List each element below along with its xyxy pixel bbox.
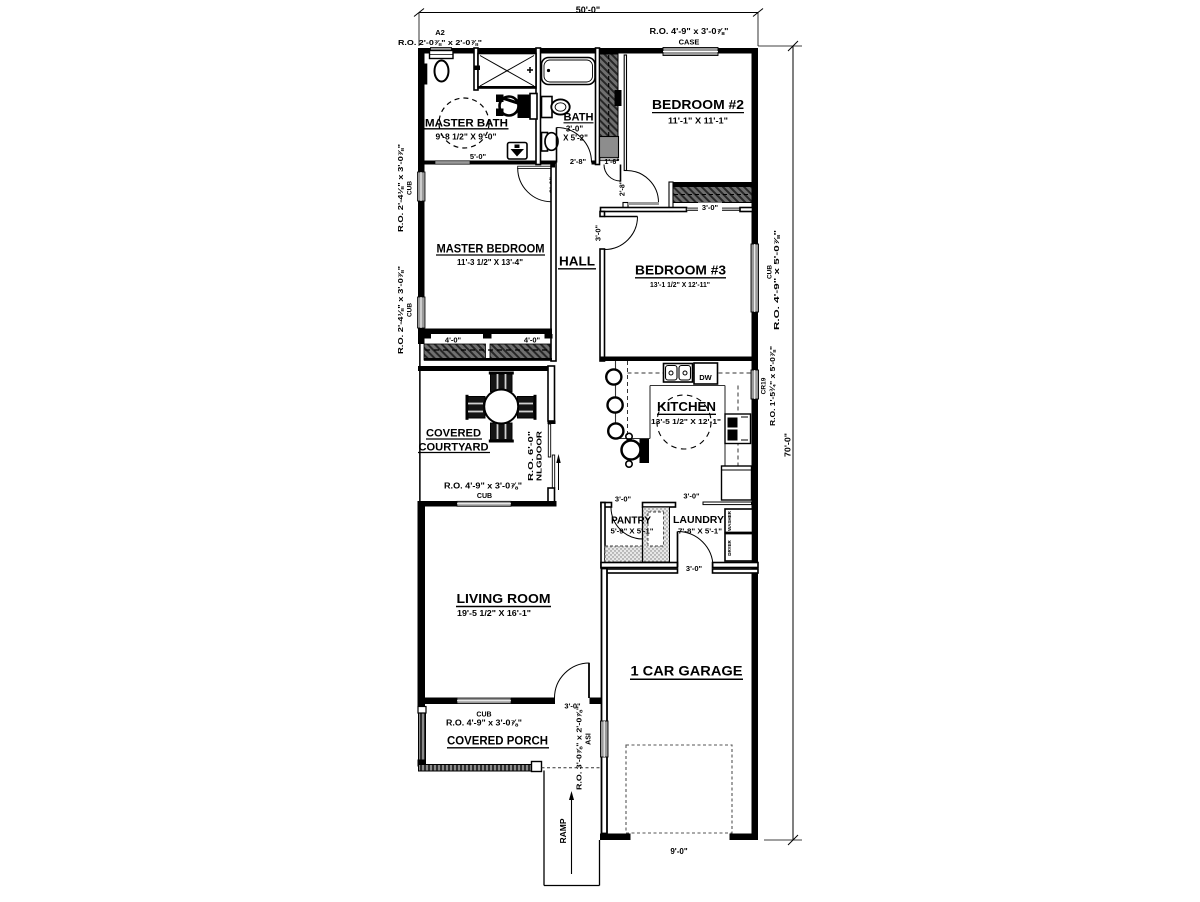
svg-text:LIVING ROOM: LIVING ROOM bbox=[457, 591, 551, 606]
svg-text:11'-1" X 11'-1": 11'-1" X 11'-1" bbox=[668, 117, 728, 126]
svg-text:5'-9" X 5'-1": 5'-9" X 5'-1" bbox=[611, 529, 654, 536]
svg-text:HALL: HALL bbox=[559, 255, 595, 269]
svg-text:BATH: BATH bbox=[564, 112, 594, 124]
svg-text:RAMP: RAMP bbox=[558, 818, 568, 843]
svg-text:3'-0": 3'-0" bbox=[686, 564, 703, 573]
svg-text:4'-0": 4'-0" bbox=[524, 336, 541, 345]
svg-text:CASE: CASE bbox=[679, 38, 700, 47]
svg-text:R.O. 3'-0⅞" x 2'-0⅞": R.O. 3'-0⅞" x 2'-0⅞" bbox=[575, 705, 584, 790]
svg-text:MASTER BEDROOM: MASTER BEDROOM bbox=[437, 242, 545, 256]
svg-text:CUB: CUB bbox=[477, 493, 492, 500]
svg-text:DW: DW bbox=[699, 373, 712, 382]
svg-text:CUB: CUB bbox=[476, 712, 491, 719]
svg-text:BEDROOM #3: BEDROOM #3 bbox=[635, 264, 726, 278]
svg-text:50'-0": 50'-0" bbox=[576, 5, 600, 15]
svg-text:COURTYARD: COURTYARD bbox=[419, 442, 489, 454]
svg-text:NLGDOOR: NLGDOOR bbox=[535, 430, 544, 481]
svg-text:3'-0": 3'-0" bbox=[615, 495, 632, 504]
svg-text:BEDROOM #2: BEDROOM #2 bbox=[652, 98, 744, 112]
svg-text:9'-0": 9'-0" bbox=[670, 847, 687, 856]
svg-text:2'-8": 2'-8" bbox=[620, 181, 627, 196]
svg-text:ASI: ASI bbox=[586, 733, 593, 745]
svg-text:13'-5 1/2" X 12'-1": 13'-5 1/2" X 12'-1" bbox=[651, 417, 721, 426]
svg-text:CUB: CUB bbox=[407, 303, 414, 317]
svg-text:70'-0": 70'-0" bbox=[784, 433, 793, 457]
svg-text:DRYER: DRYER bbox=[727, 539, 732, 555]
svg-text:WASHER: WASHER bbox=[727, 510, 732, 531]
svg-text:R.O. 4'-9" x 3'-0⅞": R.O. 4'-9" x 3'-0⅞" bbox=[650, 27, 729, 36]
svg-text:13'-1 1/2" X 12'-11": 13'-1 1/2" X 12'-11" bbox=[650, 280, 710, 289]
svg-text:11'-3 1/2" X 13'-4": 11'-3 1/2" X 13'-4" bbox=[457, 258, 523, 267]
svg-text:COVERED: COVERED bbox=[426, 428, 481, 440]
svg-text:9'-8 1/2" X 9'-0": 9'-8 1/2" X 9'-0" bbox=[436, 133, 497, 142]
svg-text:3'-0": 3'-0" bbox=[702, 203, 719, 212]
svg-text:R.O. 4'-9" x 3'-0⅞": R.O. 4'-9" x 3'-0⅞" bbox=[446, 719, 522, 728]
svg-text:PANTRY: PANTRY bbox=[611, 516, 651, 527]
svg-text:1'-6": 1'-6" bbox=[604, 159, 619, 166]
svg-text:3'-0": 3'-0" bbox=[594, 224, 603, 241]
svg-text:R.O. 1'-5¾" x 5'-0⅞": R.O. 1'-5¾" x 5'-0⅞" bbox=[768, 346, 777, 426]
svg-text:LAUNDRY: LAUNDRY bbox=[673, 515, 724, 526]
svg-text:A2: A2 bbox=[435, 28, 445, 37]
svg-text:CUB: CUB bbox=[767, 265, 774, 279]
svg-text:MASTER BATH: MASTER BATH bbox=[425, 118, 508, 130]
svg-text:5'-0": 5'-0" bbox=[470, 152, 487, 161]
svg-text:R.O. 2'-4⅛" x 3'-0⅞": R.O. 2'-4⅛" x 3'-0⅞" bbox=[398, 266, 405, 354]
svg-text:19'-5 1/2" X 16'-1": 19'-5 1/2" X 16'-1" bbox=[457, 609, 531, 618]
svg-text:3'-0": 3'-0" bbox=[683, 492, 700, 501]
svg-text:R.O. 2'-0⅞" x 2'-0⅞": R.O. 2'-0⅞" x 2'-0⅞" bbox=[398, 38, 483, 47]
svg-text:CR19: CR19 bbox=[761, 377, 768, 394]
svg-text:4'-0": 4'-0" bbox=[445, 336, 462, 345]
svg-text:KITCHEN: KITCHEN bbox=[657, 400, 716, 414]
svg-text:2'-8": 2'-8" bbox=[570, 157, 587, 166]
svg-text:1 CAR GARAGE: 1 CAR GARAGE bbox=[631, 664, 743, 679]
svg-text:COVERED PORCH: COVERED PORCH bbox=[447, 736, 548, 748]
svg-text:R.O. 4'-9" x 3'-0⅞": R.O. 4'-9" x 3'-0⅞" bbox=[444, 482, 522, 491]
svg-text:CUB: CUB bbox=[407, 181, 414, 195]
svg-text:R.O. 2'-4⅛" x 3'-0⅞": R.O. 2'-4⅛" x 3'-0⅞" bbox=[398, 144, 405, 232]
